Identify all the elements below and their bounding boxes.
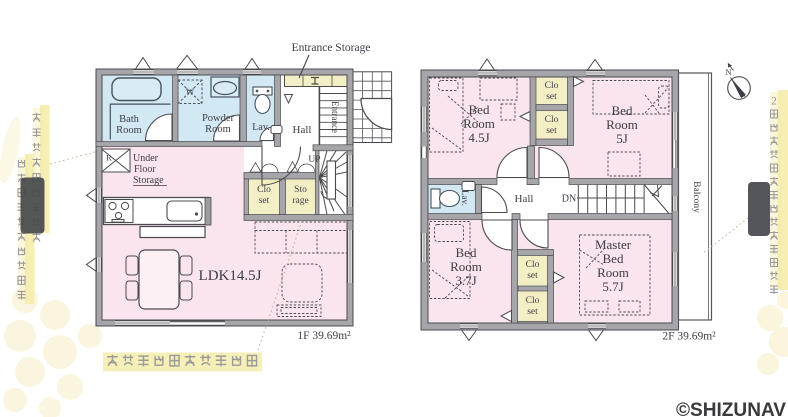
svg-text:5J: 5J [616, 131, 628, 146]
svg-text:set: set [527, 271, 538, 281]
svg-text:Bed: Bed [603, 251, 624, 266]
svg-text:Clo: Clo [257, 185, 271, 195]
svg-text:set: set [259, 196, 270, 206]
svg-text:Clo: Clo [526, 260, 540, 270]
svg-text:5.7J: 5.7J [602, 279, 623, 294]
svg-text:Room: Room [463, 116, 495, 131]
svg-text:Master: Master [595, 237, 632, 252]
svg-text:Clo: Clo [545, 115, 559, 125]
svg-text:Powder: Powder [202, 113, 235, 124]
svg-text:Hall: Hall [293, 124, 312, 136]
svg-text:LDK14.5J: LDK14.5J [199, 268, 262, 284]
svg-text:Storage: Storage [133, 175, 164, 186]
svg-text:4.5J: 4.5J [468, 130, 489, 145]
svg-text:Bed: Bed [612, 103, 633, 118]
svg-text:rage: rage [292, 196, 308, 206]
svg-text:UP: UP [308, 155, 320, 165]
svg-text:Bed: Bed [456, 245, 477, 260]
svg-text:2F 39.69m²: 2F 39.69m² [662, 331, 716, 343]
svg-text:Entrance Storage: Entrance Storage [292, 42, 371, 54]
svg-text:Entrance: Entrance [330, 101, 340, 133]
svg-text:Bed: Bed [469, 102, 490, 117]
svg-text:set: set [527, 307, 538, 317]
svg-text:Bath: Bath [119, 114, 140, 125]
svg-text:2: 2 [771, 96, 777, 108]
svg-text:©SHIZUNAV: ©SHIZUNAV [676, 399, 786, 417]
svg-text:N: N [725, 67, 731, 77]
svg-text:3.7J: 3.7J [455, 273, 476, 288]
svg-text:1F 39.69m²: 1F 39.69m² [297, 330, 351, 342]
svg-text:Room: Room [116, 125, 142, 136]
svg-text:Sto: Sto [294, 185, 307, 195]
svg-text:R: R [106, 153, 112, 163]
svg-text:Room: Room [205, 124, 231, 135]
svg-text:W: W [186, 87, 195, 97]
svg-text:Balcony: Balcony [691, 181, 701, 213]
svg-text:Room: Room [450, 259, 482, 274]
svg-text:DN: DN [562, 194, 576, 205]
svg-text:Under: Under [133, 153, 159, 164]
svg-text:Room: Room [606, 117, 638, 132]
svg-text:set: set [546, 126, 557, 136]
svg-text:set: set [546, 92, 557, 102]
svg-text:Floor: Floor [134, 164, 156, 175]
svg-text:Clo: Clo [526, 296, 540, 306]
svg-text:Lav.: Lav. [460, 190, 470, 206]
svg-text:Lav.: Lav. [252, 122, 269, 133]
svg-text:Hall: Hall [515, 193, 534, 205]
svg-text:Room: Room [597, 265, 629, 280]
svg-text:Clo: Clo [545, 81, 559, 91]
